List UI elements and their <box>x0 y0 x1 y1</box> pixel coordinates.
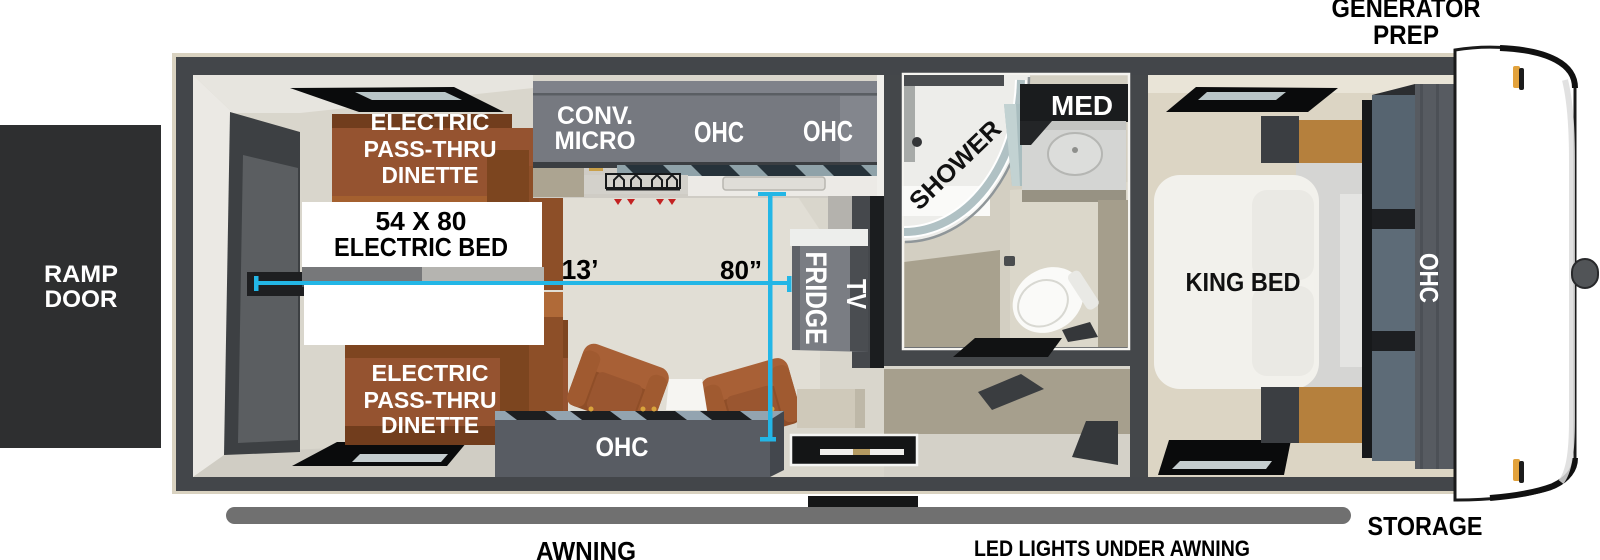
svg-text:KING BED: KING BED <box>1186 267 1301 297</box>
svg-text:OHC: OHC <box>694 117 744 149</box>
svg-text:LED LIGHTS UNDER AWNING: LED LIGHTS UNDER AWNING <box>974 536 1250 560</box>
svg-text:OHC: OHC <box>596 432 649 462</box>
svg-text:AWNING: AWNING <box>536 536 636 560</box>
svg-text:MED: MED <box>1051 90 1113 121</box>
svg-text:DOOR: DOOR <box>45 286 118 313</box>
svg-text:ELECTRIC: ELECTRIC <box>371 109 490 135</box>
svg-text:13’: 13’ <box>562 254 599 285</box>
svg-text:PASS-THRU: PASS-THRU <box>364 136 497 162</box>
svg-text:ELECTRIC: ELECTRIC <box>372 360 489 386</box>
svg-text:80”: 80” <box>720 255 762 285</box>
svg-text:FRIDGE: FRIDGE <box>799 252 832 345</box>
svg-text:DINETTE: DINETTE <box>381 412 479 438</box>
svg-text:OHC: OHC <box>803 116 853 148</box>
svg-text:STORAGE: STORAGE <box>1368 511 1483 541</box>
svg-text:CONV.: CONV. <box>557 102 633 130</box>
svg-text:PREP: PREP <box>1373 20 1439 50</box>
svg-text:TV: TV <box>841 279 872 309</box>
svg-text:PASS-THRU: PASS-THRU <box>364 387 497 413</box>
svg-text:OHC: OHC <box>1414 253 1444 303</box>
svg-text:DINETTE: DINETTE <box>382 162 479 188</box>
svg-text:MICRO: MICRO <box>555 127 636 155</box>
svg-text:ELECTRIC BED: ELECTRIC BED <box>334 232 508 262</box>
svg-text:RAMP: RAMP <box>44 261 118 288</box>
